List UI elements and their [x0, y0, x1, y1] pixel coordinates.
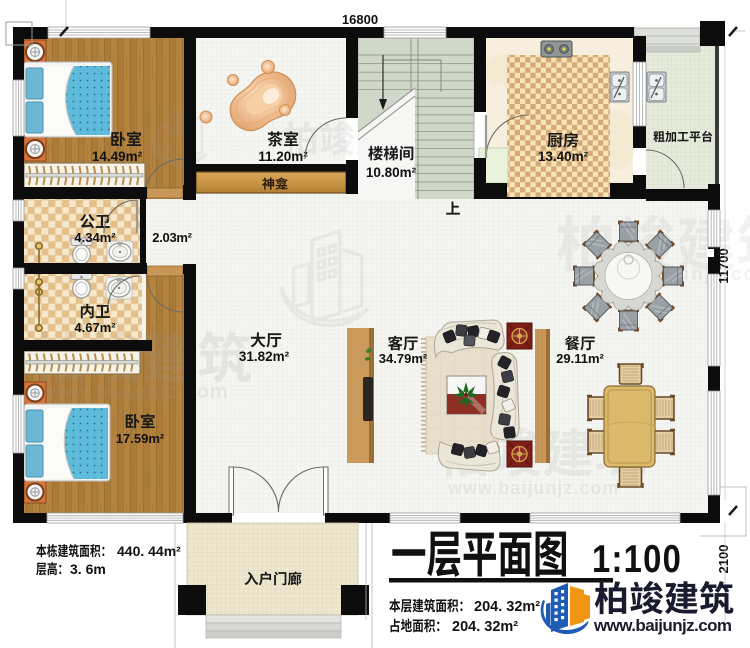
svg-text:www.baijunjz.com: www.baijunjz.com	[447, 478, 619, 498]
svg-text:440. 44m²: 440. 44m²	[117, 543, 181, 559]
svg-text:www.baijunjz.com: www.baijunjz.com	[39, 381, 229, 403]
svg-text:34.79m²: 34.79m²	[379, 351, 428, 366]
svg-text:2100: 2100	[716, 545, 731, 574]
svg-text:16800: 16800	[342, 12, 378, 27]
svg-text:11700: 11700	[716, 248, 731, 283]
svg-text:www.baijunjz.com: www.baijunjz.com	[593, 616, 732, 635]
svg-text:204. 32m²: 204. 32m²	[474, 599, 540, 615]
svg-text:1:100: 1:100	[592, 536, 682, 580]
svg-text:17.59m²: 17.59m²	[116, 431, 165, 446]
svg-text:4.67m²: 4.67m²	[74, 320, 116, 335]
svg-text:14.49m²: 14.49m²	[92, 149, 143, 164]
svg-text:10.80m²: 10.80m²	[366, 165, 417, 180]
svg-text:11.20m²: 11.20m²	[258, 149, 308, 164]
svg-text:4.34m²: 4.34m²	[74, 230, 116, 245]
svg-text:31.82m²: 31.82m²	[239, 349, 290, 364]
svg-text:29.11m²: 29.11m²	[556, 351, 604, 366]
svg-text:13.40m²: 13.40m²	[538, 149, 589, 164]
svg-text:3. 6m: 3. 6m	[70, 561, 106, 577]
svg-text:2.03m²: 2.03m²	[152, 230, 192, 245]
svg-text:204. 32m²: 204. 32m²	[452, 619, 518, 635]
